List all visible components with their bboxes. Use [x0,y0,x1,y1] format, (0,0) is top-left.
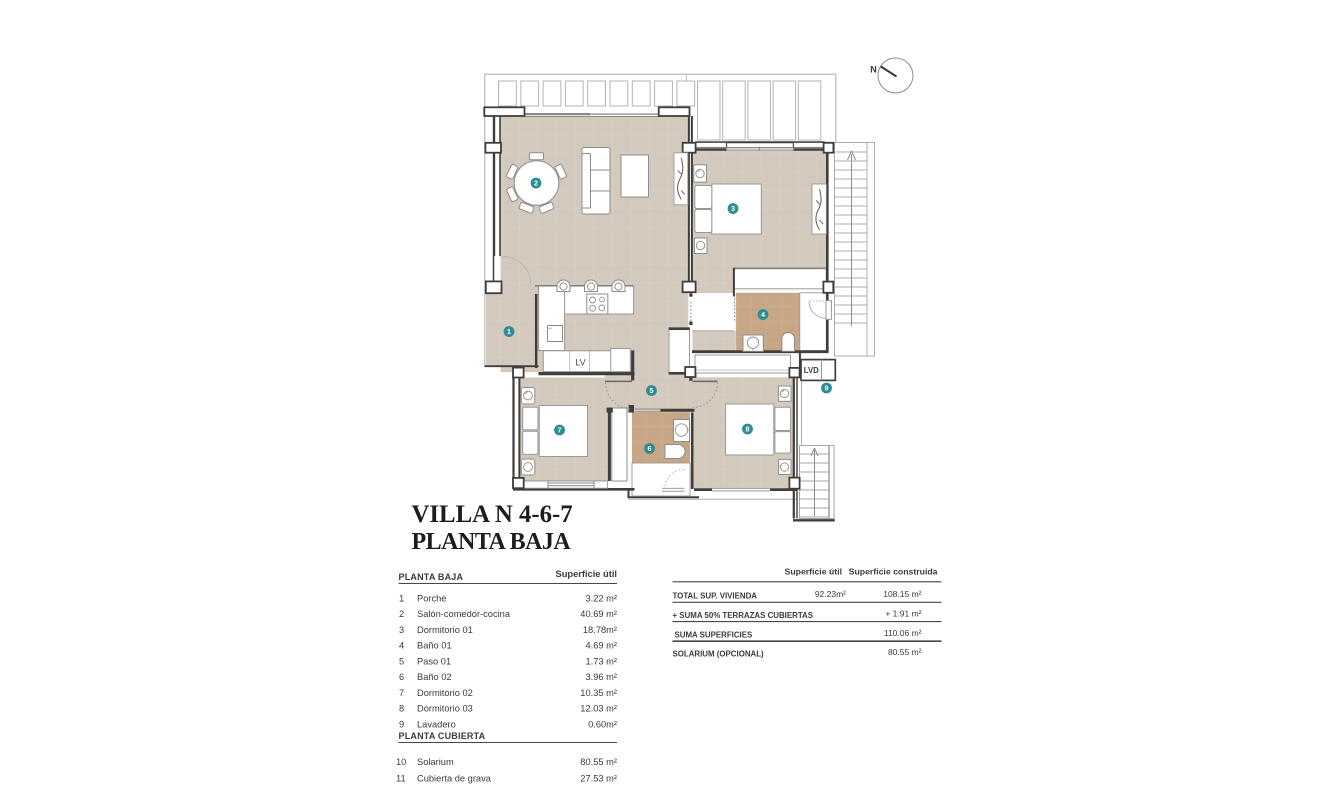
svg-text:18.78m²: 18.78m² [583,625,617,635]
svg-text:7: 7 [399,688,404,698]
svg-text:108.15 m²: 108.15 m² [883,589,921,599]
svg-text:8: 8 [399,704,404,714]
svg-text:Porche: Porche [417,593,446,603]
svg-text:4.69 m²: 4.69 m² [585,641,617,651]
svg-text:PLANTA CUBIERTA: PLANTA CUBIERTA [399,731,486,741]
svg-text:6: 6 [399,672,404,682]
svg-text:TOTAL SUP. VIVIENDA: TOTAL SUP. VIVIENDA [673,592,758,601]
svg-text:4: 4 [761,310,765,319]
svg-text:92.23m²: 92.23m² [815,589,846,599]
svg-text:PLANTA BAJA: PLANTA BAJA [412,529,572,555]
svg-text:Superficie útil: Superficie útil [785,567,842,577]
svg-text:2: 2 [399,609,404,619]
svg-text:Superficie construida: Superficie construida [849,567,938,577]
svg-text:7: 7 [558,426,562,435]
svg-text:Baño 02: Baño 02 [417,672,452,682]
svg-text:1.73 m²: 1.73 m² [585,656,617,666]
svg-text:80.55 m²: 80.55 m² [888,647,922,657]
svg-text:+ 1.91 m²: + 1.91 m² [885,609,921,619]
svg-text:27.53 m²: 27.53 m² [580,774,617,784]
svg-text:PLANTA BAJA: PLANTA BAJA [399,572,464,582]
svg-text:110.06 m²: 110.06 m² [884,628,922,638]
svg-text:Lavadero: Lavadero [417,719,456,729]
svg-text:5: 5 [650,386,654,395]
svg-text:Dormitorio 02: Dormitorio 02 [417,688,473,698]
svg-text:Salón-comedor-cocina: Salón-comedor-cocina [417,609,511,619]
svg-text:3: 3 [731,204,735,213]
svg-text:+ SUMA 50% TERRAZAS CUBIERTAS: + SUMA 50% TERRAZAS CUBIERTAS [673,611,814,620]
svg-text:9: 9 [399,719,404,729]
svg-text:Dormitorio 01: Dormitorio 01 [417,625,473,635]
svg-text:3: 3 [399,625,404,635]
svg-text:1: 1 [399,593,404,603]
svg-text:6: 6 [648,444,652,453]
svg-text:VILLA N 4-6-7: VILLA N 4-6-7 [412,501,573,528]
svg-text:10: 10 [396,757,406,767]
svg-text:LVD: LVD [804,366,819,375]
svg-text:40.69 m²: 40.69 m² [580,609,617,619]
svg-text:10.35 m²: 10.35 m² [580,688,617,698]
svg-text:3.22 m²: 3.22 m² [585,593,617,603]
svg-text:N: N [870,65,877,75]
svg-text:11: 11 [396,774,406,784]
svg-text:LV: LV [575,358,585,368]
svg-text:4: 4 [399,641,404,651]
svg-text:80.55 m²: 80.55 m² [580,757,617,767]
svg-text:9: 9 [825,384,829,393]
svg-text:0.60m²: 0.60m² [588,719,617,729]
svg-text:Paso 01: Paso 01 [417,656,451,666]
svg-text:3.96 m²: 3.96 m² [585,672,617,682]
svg-text:SOLARIUM (OPCIONAL): SOLARIUM (OPCIONAL) [673,650,765,659]
svg-text:1: 1 [507,327,511,336]
svg-text:12.03 m²: 12.03 m² [580,704,617,714]
svg-text:8: 8 [746,425,750,434]
svg-text:Superficie útil: Superficie útil [556,569,617,579]
svg-text:2: 2 [534,179,538,188]
svg-text:Dormitorio 03: Dormitorio 03 [417,704,473,714]
svg-text:Cubierta de grava: Cubierta de grava [417,774,492,784]
svg-text:Solarium: Solarium [417,757,454,767]
svg-text:SUMA SUPERFICIES: SUMA SUPERFICIES [675,630,753,639]
svg-text:Baño 01: Baño 01 [417,641,452,651]
svg-text:5: 5 [399,656,404,666]
